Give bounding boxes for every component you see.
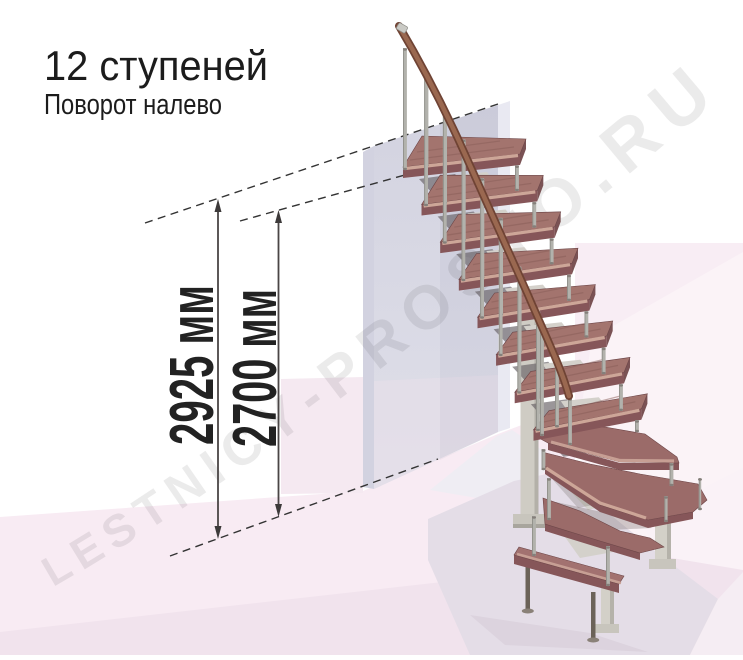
svg-text:2700 мм: 2700 мм — [221, 289, 290, 447]
svg-text:12 ступеней: 12 ступеней — [44, 42, 268, 89]
svg-text:Поворот налево: Поворот налево — [44, 89, 222, 121]
svg-text:2925 мм: 2925 мм — [158, 285, 227, 445]
